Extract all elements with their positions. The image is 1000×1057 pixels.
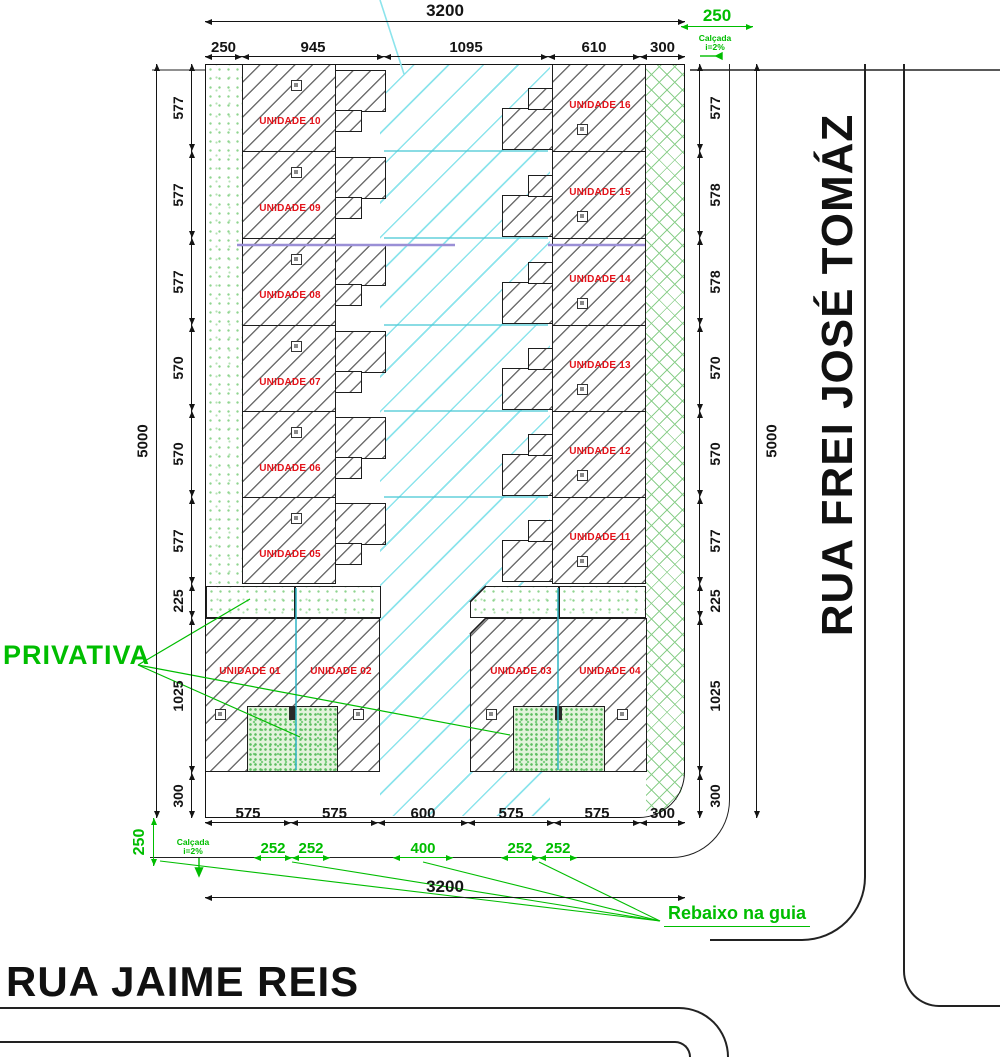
dim-label: 577 [707,96,723,119]
dim-label-left-total: 5000 [135,424,152,457]
dim-label: 300 [650,39,675,56]
dim-label: 250 [211,39,236,56]
dim-label-sidewalk-top: 250 [703,6,731,26]
dim-left-segments: 577 577 577 570 570 577 225 1025 300 [185,64,199,818]
street-name-right: RUA FREI JOSÉ TOMÁZ [808,95,868,655]
calcada-slope: i=2% [705,42,725,52]
dim-curbcut-left-pair: 252 252 [254,851,330,865]
dim-label: 570 [707,442,723,465]
dim-label: 575 [322,805,347,822]
dim-label: 577 [170,270,186,293]
dim-bottom-segments: 575 575 600 575 575 300 [205,816,685,830]
dim-sidewalk-left: 250 [147,818,161,866]
dim-label: 570 [170,356,186,379]
rebaixo-label: Rebaixo na guia [664,903,810,927]
dim-label: 252 [507,840,532,857]
dim-top-segments: 250 945 1095 610 300 [205,50,685,64]
dim-label: 400 [410,840,435,857]
dim-label-bottom-total: 3200 [426,877,464,897]
dim-label: 300 [707,784,723,807]
dim-left-total: 5000 [150,64,164,818]
dim-bottom-total: 3200 [205,891,685,905]
dim-label: 610 [581,39,606,56]
dim-label: 600 [410,805,435,822]
dim-label-sidewalk-left: 250 [131,829,149,856]
dim-label: 1095 [449,39,482,56]
dim-label: 225 [707,589,723,612]
calcada-slope: i=2% [183,846,203,856]
bottom-street-outer-curb [0,1041,691,1057]
dim-label: 578 [707,270,723,293]
dim-label-top-total: 3200 [426,1,464,21]
dim-label: 575 [584,805,609,822]
dim-label: 577 [170,183,186,206]
dim-label: 575 [235,805,260,822]
dim-label: 577 [170,96,186,119]
plot-boundary [205,64,685,818]
street-name-bottom: RUA JAIME REIS [6,958,359,1006]
dim-label: 570 [707,356,723,379]
dim-label: 945 [300,39,325,56]
dim-label: 300 [650,805,675,822]
dim-label: 570 [170,442,186,465]
dim-label: 577 [707,529,723,552]
privativa-label: PRIVATIVA [3,640,150,671]
note-calcada-left: Calçada i=2% [165,838,221,856]
dim-label: 300 [170,784,186,807]
dim-right-total: 5000 [750,64,764,818]
dim-label: 252 [298,840,323,857]
dim-label: 252 [260,840,285,857]
street-name-right-text: RUA FREI JOSÉ TOMÁZ [813,114,863,637]
dim-label: 575 [498,805,523,822]
dim-label-right-total: 5000 [764,424,781,457]
dim-label: 578 [707,183,723,206]
dim-curbcut-center: 400 [393,851,453,865]
dim-label: 577 [170,529,186,552]
note-calcada-top: Calçada i=2% [684,34,746,52]
dim-curbcut-right-pair: 252 252 [501,851,577,865]
dim-right-segments: 577 578 578 570 570 577 225 1025 300 [693,64,707,818]
site-plan: UNIDADE 10 UNIDADE 09 UNIDADE 08 UNIDADE… [0,0,1000,1057]
dim-label: 252 [545,840,570,857]
right-street-outer-curb [903,64,1000,1007]
dim-top-total: 3200 [205,15,685,29]
dim-label: 1025 [170,680,186,711]
dim-label: 225 [170,589,186,612]
dim-sidewalk-top: 250 [681,20,753,34]
dim-label: 1025 [707,680,723,711]
